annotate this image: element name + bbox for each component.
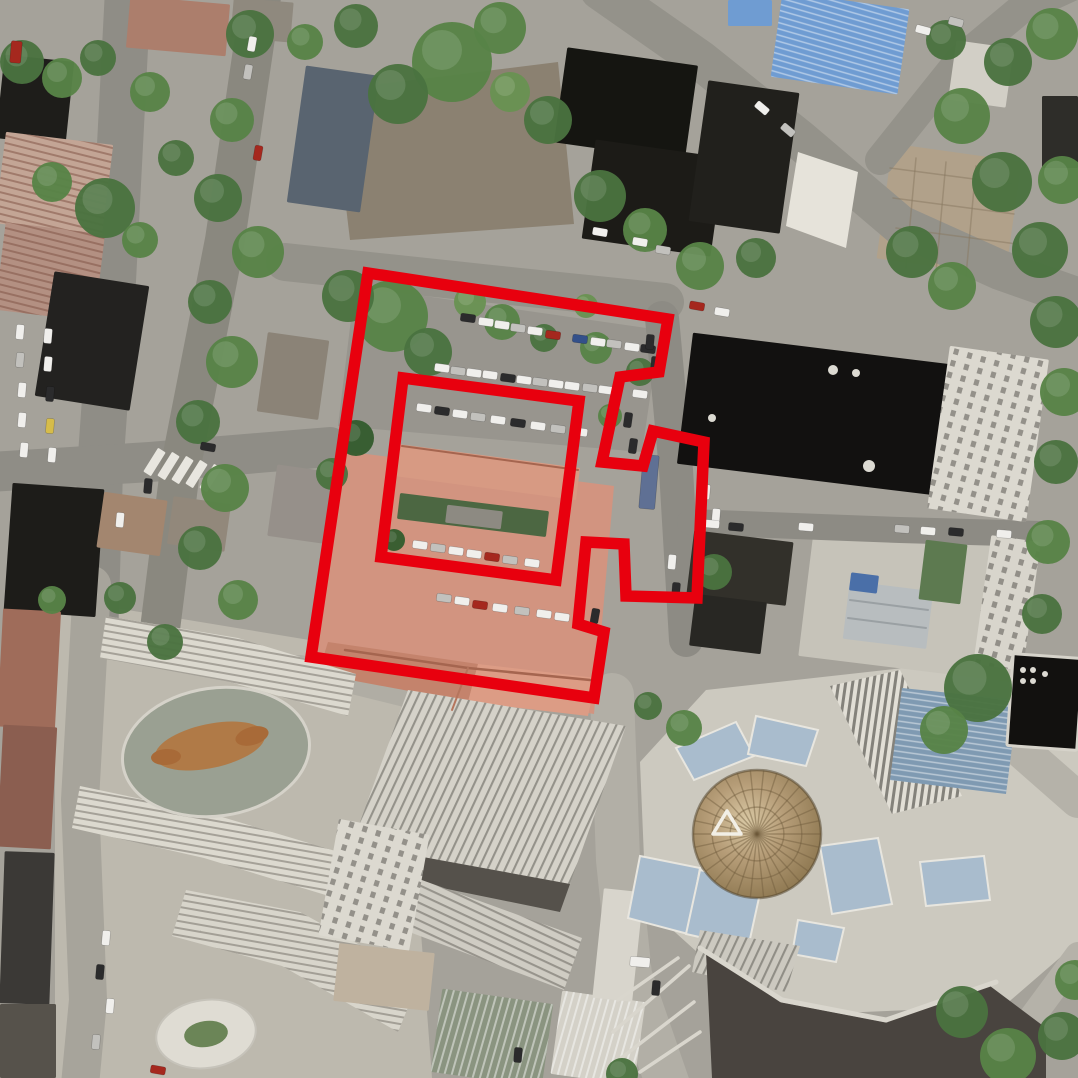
golden-dome-building	[693, 770, 821, 898]
satellite-map	[0, 0, 1078, 1078]
screenshot-root	[0, 0, 1078, 1078]
